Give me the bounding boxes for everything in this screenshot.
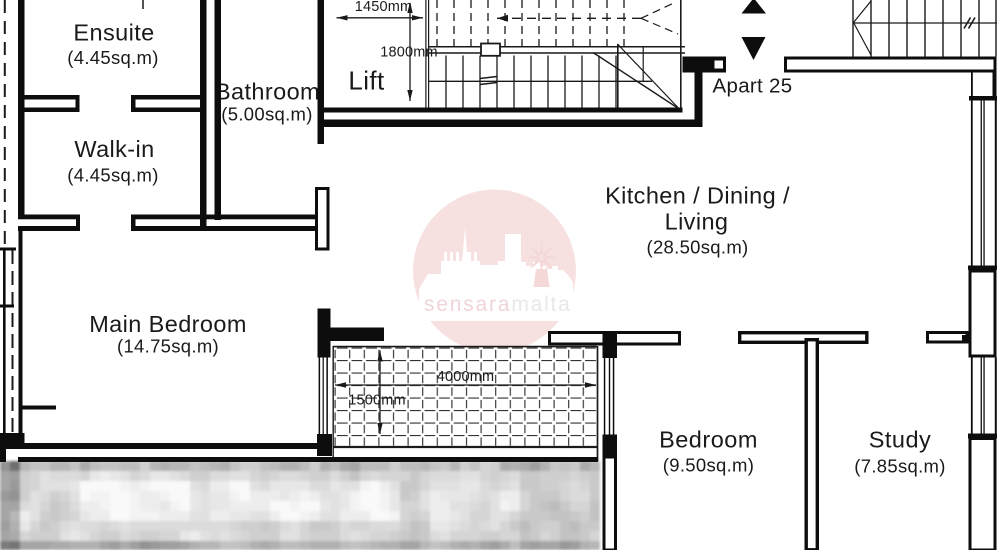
svg-text:Lift: Lift bbox=[348, 66, 385, 96]
svg-text:Bathroom: Bathroom bbox=[215, 79, 320, 105]
svg-text:Living: Living bbox=[665, 209, 729, 235]
svg-text:(4.45sq.m): (4.45sq.m) bbox=[67, 165, 158, 186]
svg-text:Main Bedroom: Main Bedroom bbox=[89, 311, 247, 337]
svg-text:Kitchen / Dining /: Kitchen / Dining / bbox=[605, 183, 790, 209]
svg-text:Ensuite: Ensuite bbox=[73, 20, 154, 46]
svg-text:(5.00sq.m): (5.00sq.m) bbox=[221, 104, 312, 125]
svg-text:(9.50sq.m): (9.50sq.m) bbox=[663, 455, 754, 476]
svg-text:(14.75sq.m): (14.75sq.m) bbox=[117, 336, 219, 357]
svg-text:(4.45sq.m): (4.45sq.m) bbox=[67, 47, 158, 68]
svg-text:sensaramalta: sensaramalta bbox=[424, 293, 572, 316]
svg-text:(7.85sq.m): (7.85sq.m) bbox=[854, 456, 945, 477]
svg-text:4000mm: 4000mm bbox=[437, 369, 495, 385]
svg-text:1500mm: 1500mm bbox=[348, 393, 406, 409]
svg-text:Study: Study bbox=[869, 427, 932, 453]
svg-text:Apart 25: Apart 25 bbox=[713, 75, 793, 98]
svg-text:Bedroom: Bedroom bbox=[659, 427, 758, 453]
svg-text:1450mm: 1450mm bbox=[355, 0, 413, 15]
svg-text:(28.50sq.m): (28.50sq.m) bbox=[646, 237, 748, 258]
svg-text:Walk-in: Walk-in bbox=[74, 136, 154, 162]
